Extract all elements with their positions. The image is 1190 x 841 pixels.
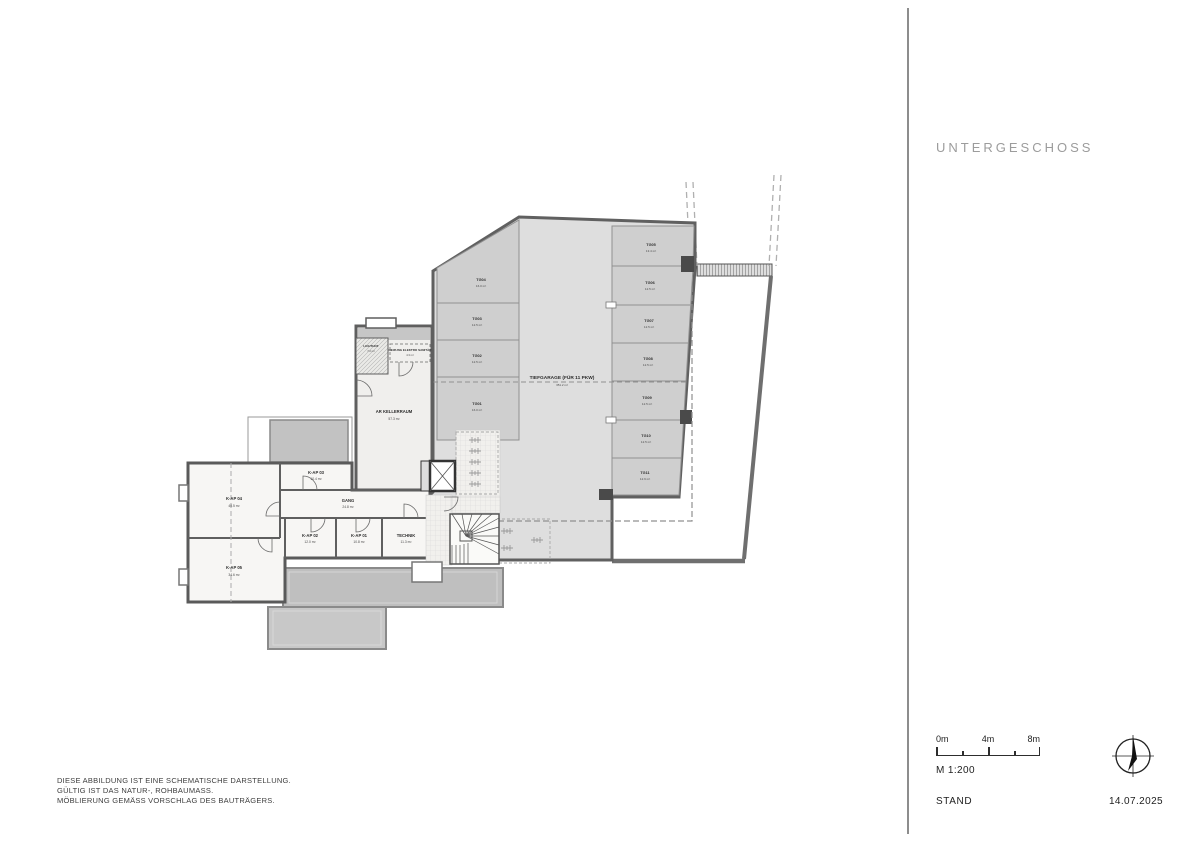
disclaimer-line-3: MÖBLIERUNG GEMÄSS VORSCHLAG DES BAUTRÄGE… xyxy=(57,796,291,806)
scale-bar-labels: 0m 4m 8m xyxy=(936,734,1040,747)
room-area-kap01: 10.8 m² xyxy=(353,540,365,544)
stall-area-tg04: 16.0 m² xyxy=(476,284,486,288)
hatched-wall xyxy=(697,264,772,276)
floor-plan: TIEFGARAGE (FÜR 11 PKW) 351.2 m² TG01 16… xyxy=(0,0,1190,841)
room-area-kap04: 40.5 m² xyxy=(228,504,240,508)
stall-tg03 xyxy=(437,303,519,340)
stall-label-tg06: TG06 xyxy=(645,281,655,285)
room-area-kap05: 34.6 m² xyxy=(228,573,240,577)
room-label-kap04: K-AP 04 xyxy=(226,496,243,501)
disclaimer: DIESE ABBILDUNG IST EINE SCHEMATISCHE DA… xyxy=(57,776,291,806)
scale-label-4m: 4m xyxy=(982,734,995,747)
page-title: UNTERGESCHOSS xyxy=(936,140,1093,155)
scale-bar: 0m 4m 8m xyxy=(936,734,1040,756)
scale-bar-ruler xyxy=(936,747,1040,756)
stall-area-tg09: 12.5 m² xyxy=(642,402,652,406)
disclaimer-line-1: DIESE ABBILDUNG IST EINE SCHEMATISCHE DA… xyxy=(57,776,291,786)
stall-area-tg07: 12.5 m² xyxy=(644,325,654,329)
room-label-technik: TECHNIK xyxy=(397,533,416,538)
patio-south-2 xyxy=(268,607,386,649)
stand-date: 14.07.2025 xyxy=(1095,796,1163,807)
garage-label: TIEFGARAGE (FÜR 11 PKW) xyxy=(530,374,595,381)
scale-label-0m: 0m xyxy=(936,734,949,747)
stall-label-tg10: TG10 xyxy=(641,434,651,438)
room-area-technik: 11.3 m² xyxy=(401,540,413,544)
room-label-lichthof: LICHTHOF xyxy=(363,344,378,348)
north-arrow-icon xyxy=(1107,729,1159,781)
map-scale: M 1:200 xyxy=(936,765,975,776)
stall-label-tg07: TG07 xyxy=(644,319,654,323)
room-area-lichthof: 7.2 m² xyxy=(367,349,375,353)
room-label-kap02: K-AP 02 xyxy=(302,533,319,538)
stall-tg02 xyxy=(437,340,519,377)
room-label-kap03: K-AP 03 xyxy=(308,470,325,475)
room-area-kap03: 10.4 m² xyxy=(310,477,322,481)
plan-sheet: TIEFGARAGE (FÜR 11 PKW) 351.2 m² TG01 16… xyxy=(0,0,1190,841)
stall-label-tg01: TG01 xyxy=(472,402,482,406)
room-area-kellerraum: 57.3 m² xyxy=(388,417,400,421)
room-area-gang: 24.8 m² xyxy=(342,505,354,509)
stall-label-tg02: TG02 xyxy=(472,354,482,358)
room-label-gang: GANG xyxy=(342,498,355,503)
stall-area-tg01: 16.0 m² xyxy=(472,408,482,412)
stall-tg04 xyxy=(437,220,519,303)
exterior-stair-box xyxy=(412,562,442,582)
stall-area-tg06: 12.5 m² xyxy=(645,287,655,291)
room-label-haustechnik: HEIZUNG ELEKTRO SANITÄR xyxy=(389,348,433,352)
room-label-kap05: K-AP 05 xyxy=(226,565,243,570)
stall-label-tg08: TG08 xyxy=(643,357,653,361)
stall-area-tg08: 12.5 m² xyxy=(643,363,653,367)
stand-label: STAND xyxy=(936,796,972,807)
patio-south-1 xyxy=(283,568,503,607)
stall-area-tg02: 12.5 m² xyxy=(472,360,482,364)
room-area-kap02: 12.0 m² xyxy=(304,540,316,544)
panel-divider xyxy=(907,8,909,834)
stall-label-tg11: TG11 xyxy=(640,471,649,475)
stall-area-tg10: 12.5 m² xyxy=(641,440,651,444)
dashed-boundary-lines xyxy=(686,175,781,266)
elevator-shaft-side xyxy=(421,461,430,491)
stall-label-tg05: TG05 xyxy=(646,243,656,247)
room-label-kap01: K-AP 01 xyxy=(351,533,368,538)
room-label-kellerraum: AR KELLERRAUM xyxy=(376,409,413,414)
elevator xyxy=(421,461,455,491)
stall-area-tg11: 12.9 m² xyxy=(640,477,650,481)
wall-projection xyxy=(366,318,396,328)
stall-area-tg05: 13.4 m² xyxy=(646,249,656,253)
scale-label-8m: 8m xyxy=(1027,734,1040,747)
garage-area: 351.2 m² xyxy=(556,383,568,387)
lightwell-west xyxy=(270,420,348,462)
disclaimer-line-2: GÜLTIG IST DAS NATUR-, ROHBAUMASS. xyxy=(57,786,291,796)
stall-label-tg03: TG03 xyxy=(472,317,482,321)
room-area-haustechnik: 4.3 m² xyxy=(406,353,414,357)
stall-label-tg04: TG04 xyxy=(476,278,486,282)
east-wall xyxy=(744,276,771,559)
stall-area-tg03: 12.5 m² xyxy=(472,323,482,327)
staircase xyxy=(450,514,499,564)
stall-label-tg09: TG09 xyxy=(642,396,652,400)
